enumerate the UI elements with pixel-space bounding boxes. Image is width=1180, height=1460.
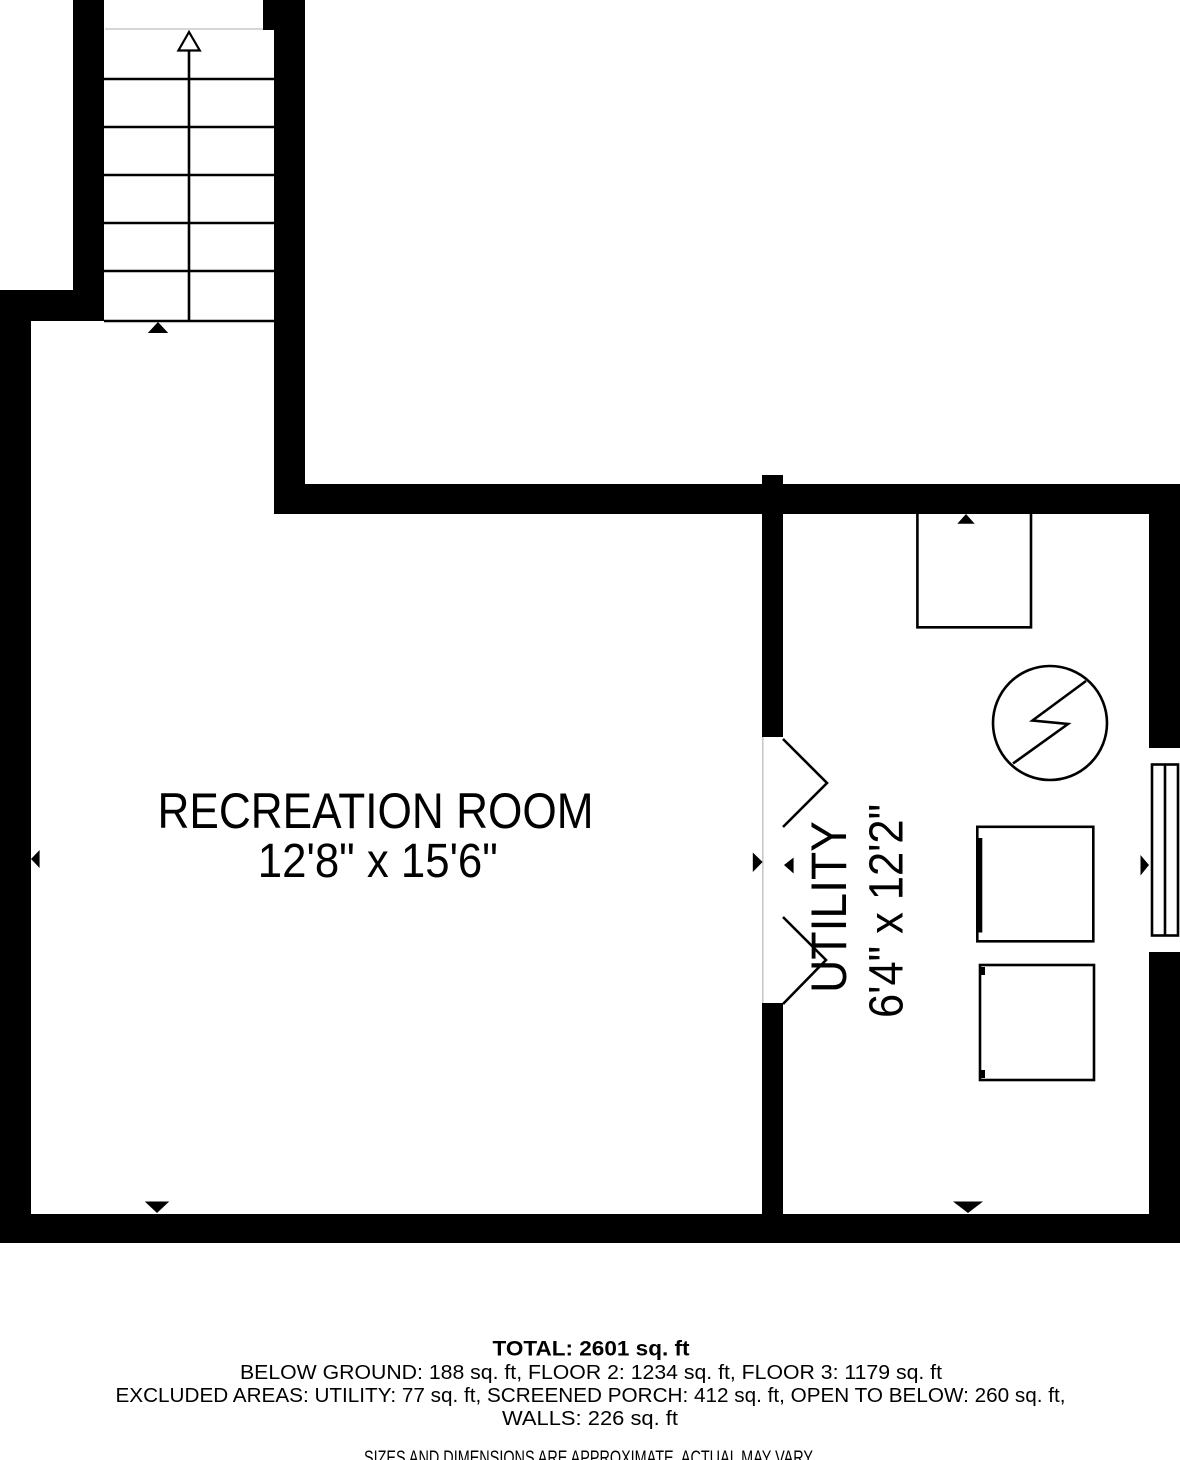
svg-text:UTILITY: UTILITY: [801, 821, 857, 993]
svg-text:TOTAL: 2601 sq. ft: TOTAL: 2601 sq. ft: [493, 1338, 690, 1361]
svg-text:RECREATION ROOM: RECREATION ROOM: [158, 783, 594, 839]
svg-text:6'4" x 12'2": 6'4" x 12'2": [861, 804, 914, 1018]
svg-text:WALLS: 226 sq. ft: WALLS: 226 sq. ft: [502, 1408, 678, 1430]
svg-text:EXCLUDED AREAS: UTILITY: 77 sq: EXCLUDED AREAS: UTILITY: 77 sq. ft, SCRE…: [116, 1385, 1066, 1407]
svg-text:BELOW GROUND: 188 sq. ft, FLOO: BELOW GROUND: 188 sq. ft, FLOOR 2: 1234 …: [240, 1362, 942, 1384]
svg-text:12'8" x 15'6": 12'8" x 15'6": [258, 835, 498, 888]
svg-text:SIZES AND DIMENSIONS ARE APPRO: SIZES AND DIMENSIONS ARE APPROXIMATE, AC…: [364, 1448, 813, 1460]
